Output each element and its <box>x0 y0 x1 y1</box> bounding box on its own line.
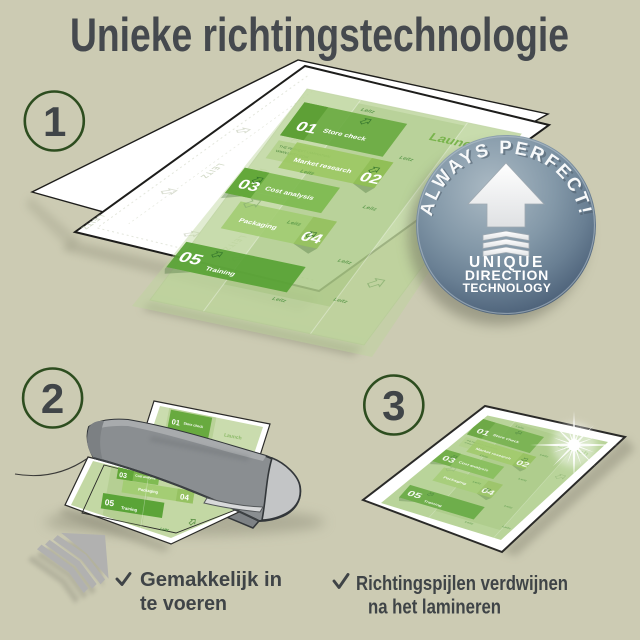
svg-text:01: 01 <box>171 417 181 427</box>
svg-text:03: 03 <box>119 472 128 480</box>
svg-text:na het lamineren: na het lamineren <box>368 596 501 619</box>
svg-text:2: 2 <box>41 375 64 422</box>
svg-text:Gemakkelijk in: Gemakkelijk in <box>140 568 282 591</box>
svg-text:Richtingspijlen verdwijnen: Richtingspijlen verdwijnen <box>356 572 568 595</box>
svg-text:Unieke richtingstechnologie: Unieke richtingstechnologie <box>70 8 569 61</box>
svg-text:3: 3 <box>382 382 405 429</box>
svg-text:05: 05 <box>104 497 115 508</box>
svg-text:TECHNOLOGY: TECHNOLOGY <box>463 281 552 295</box>
svg-text:1: 1 <box>43 98 66 145</box>
svg-text:te voeren: te voeren <box>140 592 227 615</box>
